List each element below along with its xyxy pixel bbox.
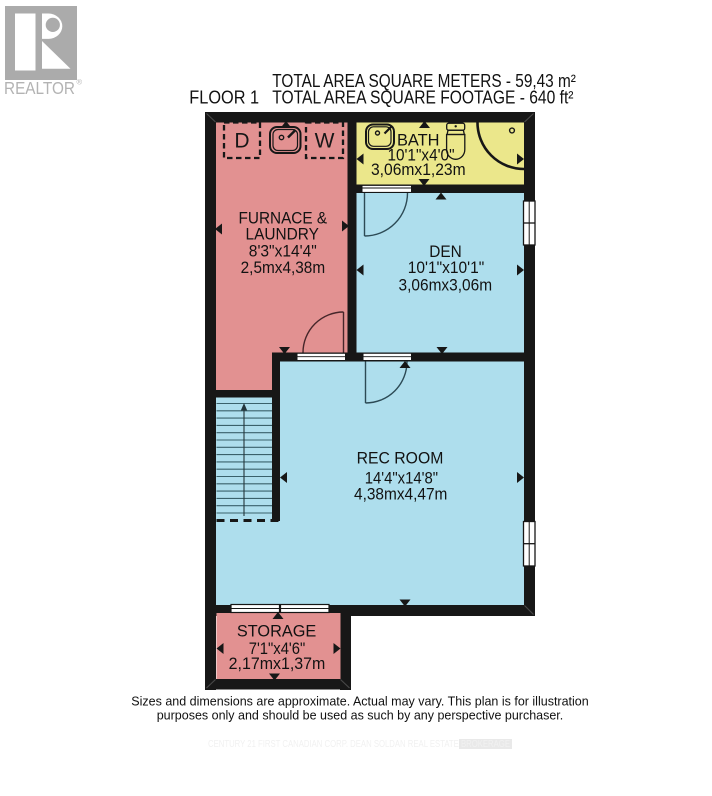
svg-text:2,17mx1,37m: 2,17mx1,37m — [229, 654, 326, 673]
svg-text:Sizes and dimensions are appro: Sizes and dimensions are approximate. Ac… — [131, 695, 588, 709]
svg-text:REALTOR: REALTOR — [4, 78, 75, 98]
svg-text:STORAGE: STORAGE — [237, 622, 316, 641]
svg-text:TOTAL AREA SQUARE FOOTAGE - 6: TOTAL AREA SQUARE FOOTAGE - 640 ft² — [272, 88, 573, 108]
svg-text:D: D — [234, 130, 249, 153]
svg-text:3,06mx1,23m: 3,06mx1,23m — [371, 160, 466, 179]
svg-text:®: ® — [77, 78, 83, 87]
svg-text:FLOOR 1: FLOOR 1 — [189, 88, 259, 108]
svg-text:W: W — [315, 130, 335, 153]
svg-text:3,06mx3,06m: 3,06mx3,06m — [399, 276, 493, 295]
svg-text:10'1"x10'1": 10'1"x10'1" — [408, 258, 485, 277]
svg-text:REC ROOM: REC ROOM — [357, 449, 444, 468]
svg-text:4,38mx4,47m: 4,38mx4,47m — [354, 485, 447, 504]
svg-text:2,5mx4,38m: 2,5mx4,38m — [241, 258, 326, 277]
svg-text:purposes only and should be us: purposes only and should be used as such… — [157, 709, 564, 723]
svg-text:CENTURY 21 FIRST CANADIAN CORP: CENTURY 21 FIRST CANADIAN CORP. DEAN SOL… — [208, 738, 510, 750]
